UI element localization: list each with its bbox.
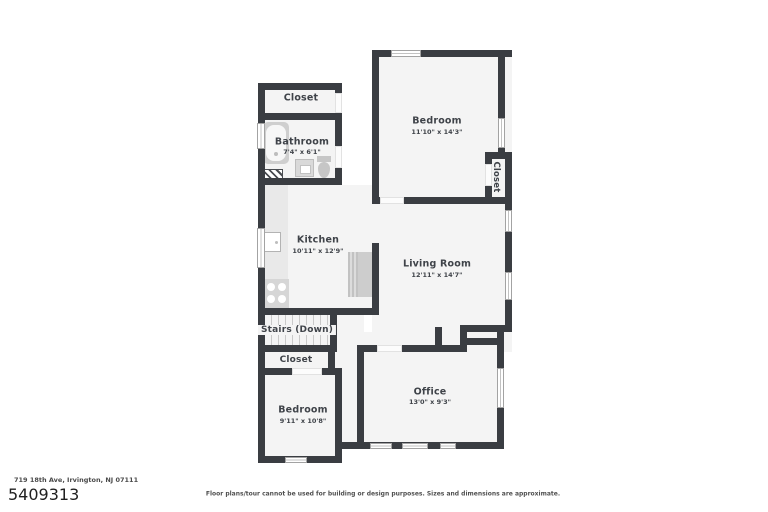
room-dims-bedroom-top: 11'10" x 14'3" xyxy=(411,128,462,136)
window xyxy=(497,368,504,408)
room-dims-kitchen: 10'11" x 12'9" xyxy=(292,247,343,255)
room-dims-bedroom-bottom: 9'11" x 10'8" xyxy=(280,417,327,425)
kitchen-sink xyxy=(264,232,281,252)
wall xyxy=(435,327,442,352)
mls-number: 5409313 xyxy=(8,485,79,504)
wall xyxy=(467,338,497,345)
burner xyxy=(278,295,286,303)
stairs-up-stripes xyxy=(348,252,358,297)
burner xyxy=(278,283,286,291)
window xyxy=(402,443,428,449)
stairs-label-text: Stairs (Down) xyxy=(258,325,336,335)
refrigerator xyxy=(348,252,372,297)
wall xyxy=(357,345,364,449)
room-label-kitchen: Kitchen xyxy=(297,235,339,246)
wall xyxy=(258,345,337,352)
door-opening xyxy=(335,93,342,113)
wall xyxy=(258,308,379,315)
window xyxy=(391,50,421,57)
room-dims-living-room: 12'11" x 14'7" xyxy=(411,271,462,279)
property-address: 719 18th Ave, Irvington, NJ 07111 xyxy=(14,476,138,484)
room-label-stairs: Stairs (Down) xyxy=(258,325,336,335)
door-opening xyxy=(335,146,342,168)
wall xyxy=(357,345,377,352)
floorplan-page: Closet Bathroom 7'4" x 6'1" Bedroom 11'1… xyxy=(0,0,768,512)
window xyxy=(257,123,265,149)
room-label-bedroom-bottom: Bedroom xyxy=(278,405,328,416)
door-opening xyxy=(292,368,322,375)
window xyxy=(498,118,505,148)
wall xyxy=(258,113,342,120)
room-label-closet-top: Closet xyxy=(284,93,319,104)
wall xyxy=(460,325,512,332)
window xyxy=(257,228,265,268)
wall xyxy=(372,50,379,204)
disclaimer-text: Floor plans/tour cannot be used for buil… xyxy=(206,491,560,498)
room-label-office: Office xyxy=(414,387,447,398)
wall xyxy=(404,197,512,204)
wall xyxy=(258,368,292,375)
room-label-closet-right: Closet xyxy=(491,161,501,192)
bathroom-sink xyxy=(295,159,314,177)
window xyxy=(285,457,307,463)
window xyxy=(370,443,392,449)
room-dims-office: 13'0" x 9'3" xyxy=(409,398,451,406)
wall xyxy=(258,178,342,185)
room-label-bathroom: Bathroom xyxy=(275,137,329,148)
room-label-bedroom-top: Bedroom xyxy=(412,116,462,127)
faucet-dot xyxy=(275,241,278,244)
room-label-living-room: Living Room xyxy=(403,259,471,270)
wall xyxy=(372,243,379,315)
room-label-closet-bottom: Closet xyxy=(280,355,313,365)
wall xyxy=(335,120,342,146)
bathtub-drain xyxy=(274,152,278,156)
window xyxy=(505,272,512,300)
stove xyxy=(264,279,289,308)
wall xyxy=(322,368,335,375)
door-opening xyxy=(377,345,402,352)
floor-area xyxy=(342,352,357,442)
room-dims-bathroom: 7'4" x 6'1" xyxy=(283,148,321,156)
wall xyxy=(505,152,512,332)
window xyxy=(505,210,512,232)
sink-basin xyxy=(300,165,311,174)
wall xyxy=(372,197,380,204)
wall xyxy=(335,83,342,93)
burner xyxy=(267,295,275,303)
door-opening xyxy=(380,197,404,204)
window xyxy=(440,443,456,449)
wall xyxy=(258,83,342,90)
burner xyxy=(267,283,275,291)
